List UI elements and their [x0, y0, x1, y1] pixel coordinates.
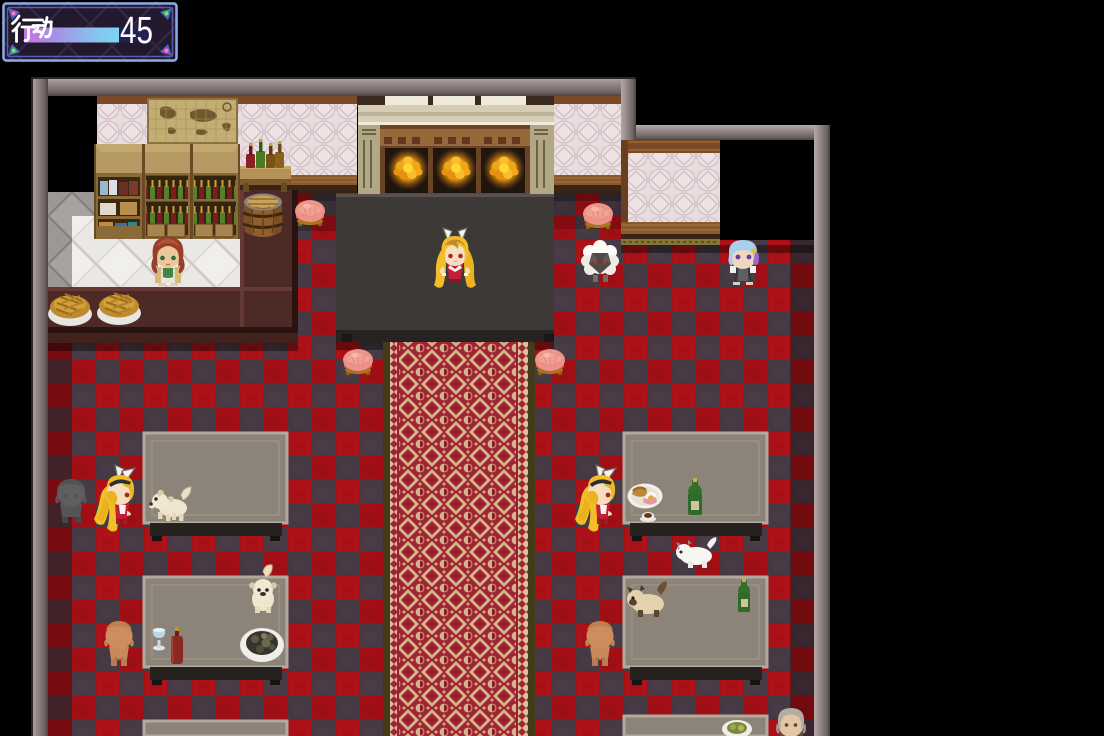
svg-text:45: 45: [120, 10, 153, 52]
